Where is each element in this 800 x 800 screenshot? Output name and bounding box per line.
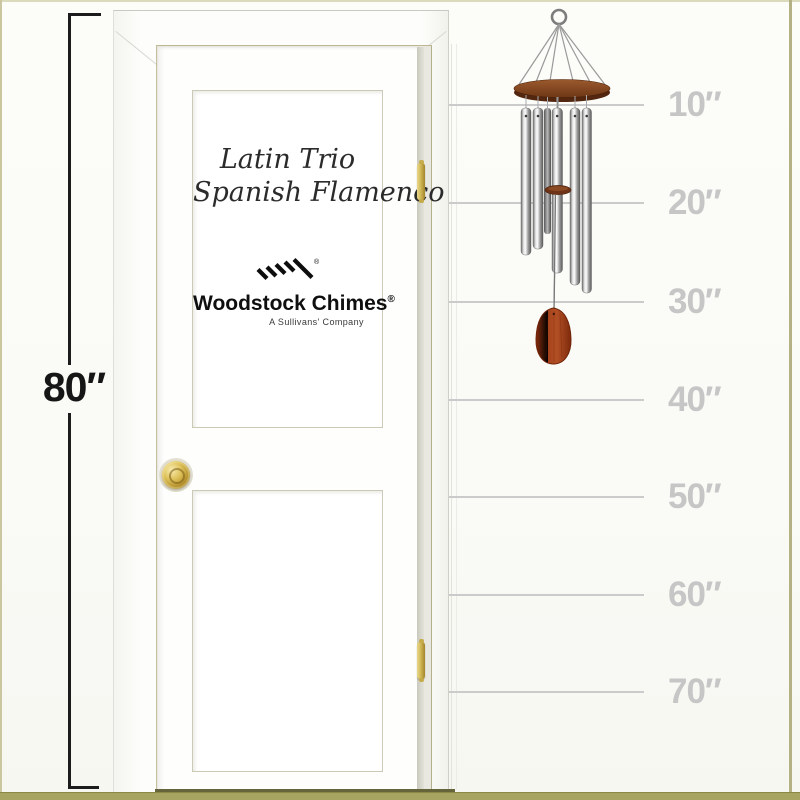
tick-line (437, 496, 644, 498)
suspension-strings (518, 24, 606, 86)
chime-tube-rear (544, 108, 551, 234)
tick-label: 30″ (668, 281, 778, 323)
door-slab: Latin Trio Spanish Flamenco (158, 47, 424, 793)
image-border-left (0, 0, 2, 800)
tick-label: 50″ (668, 476, 778, 518)
doorknob (162, 461, 190, 489)
wood-top-disc (514, 80, 610, 98)
tick-line (437, 399, 644, 401)
chime-tube-5 (582, 108, 592, 293)
chime-tubes (521, 108, 592, 293)
tick-label: 60″ (668, 574, 778, 616)
doorknob-ring (169, 468, 185, 484)
tick-label: 10″ (668, 84, 778, 126)
chime-tube-4 (570, 108, 580, 285)
wall-corner-line (451, 44, 452, 790)
windcatcher (536, 308, 571, 364)
door-hinge-top (417, 163, 425, 200)
tick-line (437, 691, 644, 693)
door-panel-text: Latin Trio Spanish Flamenco (193, 143, 382, 209)
measure-line-lower (68, 413, 71, 789)
measure-bracket-top (68, 13, 101, 16)
registered-mark: ® (387, 294, 394, 305)
logo-registered-mark: ® (314, 258, 320, 266)
product-name-line1: Latin Trio (193, 143, 382, 176)
measure-bracket-bottom (68, 786, 99, 789)
tick-label: 40″ (668, 379, 778, 421)
product-size-comparison-image: 10″ 20″ 30″ 40″ 50″ 60″ 70″ (0, 0, 800, 800)
tick-label: 70″ (668, 671, 778, 713)
image-border-bottom (0, 792, 800, 800)
door-height-label: 80″ (34, 363, 114, 411)
clapper-top (548, 186, 568, 191)
door-panel-lower (192, 490, 383, 772)
door-frame: Latin Trio Spanish Flamenco (113, 10, 449, 792)
wall-corner-line (456, 44, 457, 790)
brand-tagline: A Sullivans' Company (193, 316, 382, 328)
frame-miter-left (115, 31, 159, 67)
door-panel-upper: Latin Trio Spanish Flamenco (192, 90, 383, 428)
brand-name: Woodstock Chimes® (193, 288, 382, 316)
wind-chime (478, 2, 623, 370)
image-border-top (0, 0, 800, 2)
product-name-line2: Spanish Flamenco (193, 176, 382, 209)
door-opening: Latin Trio Spanish Flamenco (156, 45, 432, 793)
brand-logo-block: ® Woodstock Chimes® A Sullivans' Company (193, 257, 382, 328)
chime-tube-2 (533, 108, 543, 249)
image-border-right (789, 0, 792, 800)
door-hinge-bottom (417, 642, 425, 679)
tick-line (437, 594, 644, 596)
woodstock-chimes-logo-icon: ® (255, 257, 321, 281)
tick-label: 20″ (668, 182, 778, 224)
chime-tube-1 (521, 108, 531, 255)
hanging-ring-icon (552, 10, 566, 24)
measure-line-upper (68, 13, 71, 365)
windcatcher-knot (553, 313, 555, 315)
